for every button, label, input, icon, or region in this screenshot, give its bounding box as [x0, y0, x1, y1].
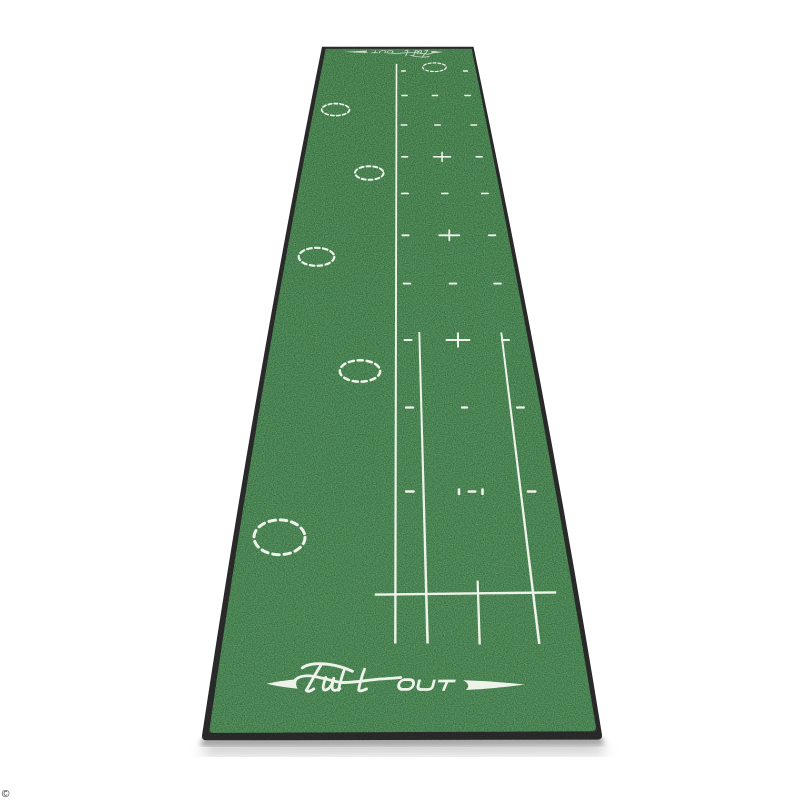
svg-text:©: ©	[2, 788, 10, 800]
